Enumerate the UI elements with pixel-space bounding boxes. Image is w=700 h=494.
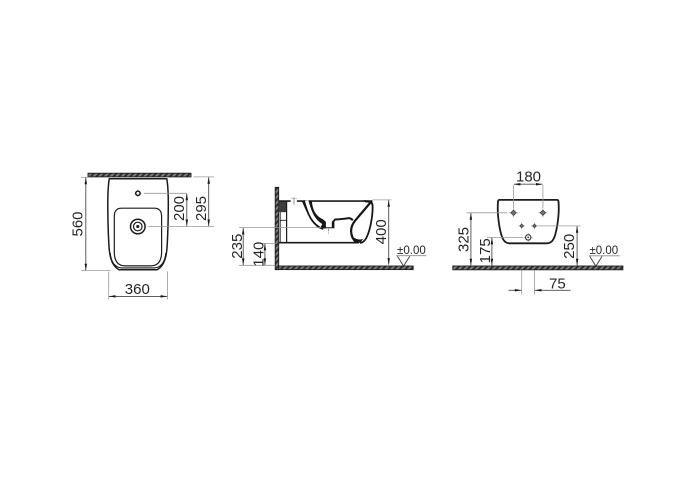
svg-text:180: 180: [516, 169, 541, 186]
svg-text:360: 360: [125, 281, 150, 298]
svg-text:325: 325: [455, 227, 472, 252]
svg-text:175: 175: [477, 238, 494, 263]
svg-text:560: 560: [70, 211, 87, 236]
svg-text:140: 140: [250, 242, 267, 267]
svg-text:200: 200: [171, 196, 188, 221]
svg-text:250: 250: [561, 234, 578, 259]
svg-text:400: 400: [373, 219, 390, 244]
svg-text:235: 235: [229, 234, 246, 259]
svg-text:75: 75: [549, 275, 566, 292]
svg-text:295: 295: [193, 196, 210, 221]
